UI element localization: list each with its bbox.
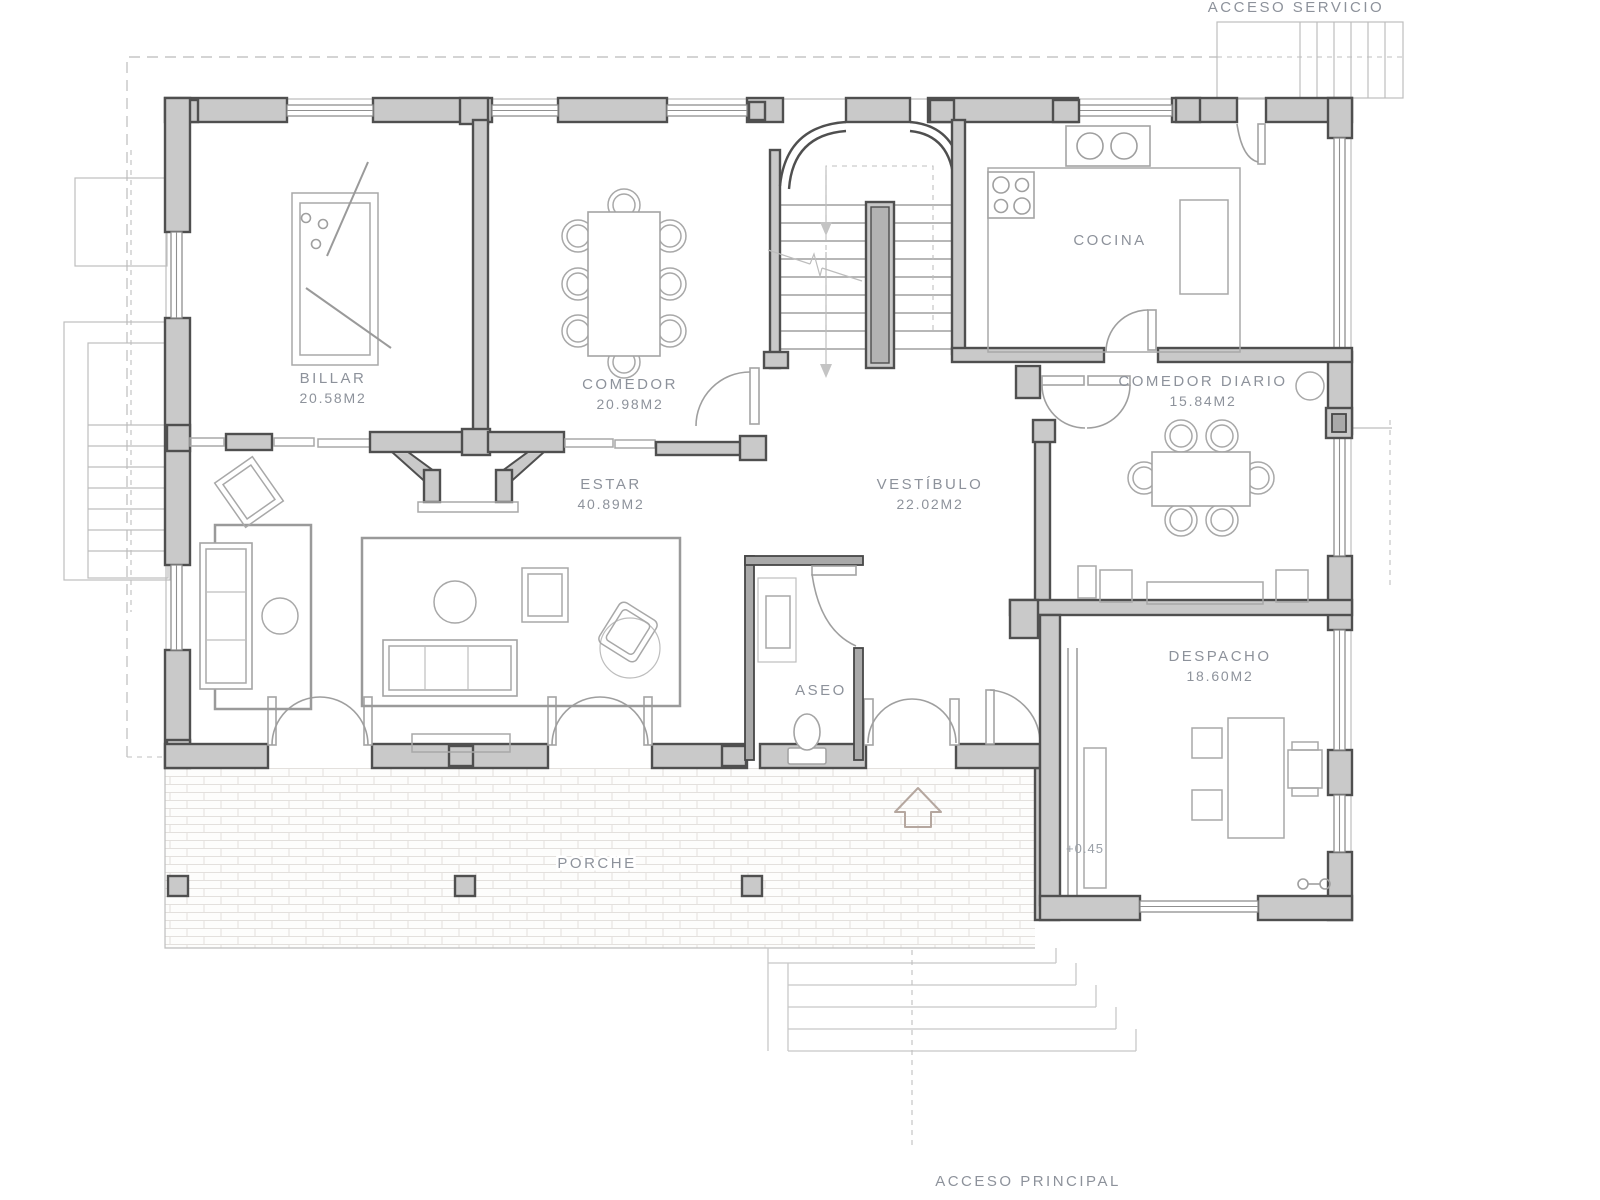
room-area-billar: 20.58M2 xyxy=(299,390,366,406)
side-chair xyxy=(1276,570,1308,602)
small-cabinet xyxy=(1078,566,1096,598)
stove-icon xyxy=(988,172,1034,218)
pillar xyxy=(1016,366,1040,398)
washbasin-icon xyxy=(758,578,796,662)
room-label-vestibulo: VESTÍBULO xyxy=(877,476,984,493)
main-access-steps xyxy=(768,948,1136,1051)
side-table xyxy=(262,598,298,634)
dining-table xyxy=(588,212,660,356)
exterior-wall-right xyxy=(1326,98,1352,920)
kitchen-door xyxy=(1106,310,1156,352)
armchair xyxy=(522,568,568,622)
room-area-estar: 40.89M2 xyxy=(577,496,644,512)
half-wall-radiator-row xyxy=(190,429,766,460)
left-exterior-stairs xyxy=(64,150,170,612)
service-access-stairs xyxy=(1217,22,1403,98)
floor-plan-drawing: ACCESO SERVICIO BILLAR 20.58M2 COMEDOR 2… xyxy=(0,0,1600,1200)
visitor-chair xyxy=(1192,728,1222,758)
porch-post xyxy=(742,876,762,896)
room-label-comedor-diario: COMEDOR DIARIO xyxy=(1118,373,1287,390)
coffee-table xyxy=(434,581,476,623)
arched-opening xyxy=(780,122,962,189)
level-mark-label: +0.45 xyxy=(1066,841,1104,856)
left-exterior-planter xyxy=(75,178,167,266)
sofa xyxy=(383,640,517,696)
sofa xyxy=(200,543,252,689)
stair-wall-foot xyxy=(764,352,788,368)
room-label-porche: PORCHE xyxy=(557,855,636,872)
kitchen-island xyxy=(1180,200,1228,294)
pillar xyxy=(930,100,954,122)
stair-wall xyxy=(770,150,780,368)
pillar xyxy=(740,436,766,460)
stair-direction-arrows xyxy=(768,170,862,378)
porch-post xyxy=(455,876,475,896)
french-door xyxy=(864,699,959,745)
room-label-billar: BILLAR xyxy=(300,370,367,387)
exterior-wall-top xyxy=(165,98,1352,164)
main-access-label: ACCESO PRINCIPAL xyxy=(935,1173,1121,1190)
corner-plant xyxy=(1296,372,1324,400)
aseo-walls xyxy=(745,556,863,764)
french-door xyxy=(268,697,372,745)
service-door xyxy=(1237,124,1265,164)
room-area-comedor: 20.98M2 xyxy=(596,396,663,412)
room-area-despacho: 18.60M2 xyxy=(1186,668,1253,684)
exterior-wall-bottom xyxy=(165,690,1040,768)
pillar-core xyxy=(1332,414,1346,432)
side-chair xyxy=(1100,570,1132,602)
wall-joint-detail xyxy=(1298,879,1330,889)
armchair xyxy=(215,457,284,528)
room-label-estar: ESTAR xyxy=(580,476,641,493)
room-labels: ACCESO SERVICIO BILLAR 20.58M2 COMEDOR 2… xyxy=(299,0,1384,1190)
room-label-cocina: COCINA xyxy=(1073,232,1146,249)
desk xyxy=(1228,718,1284,838)
exterior-wall-left xyxy=(165,98,190,768)
pillar xyxy=(1053,100,1079,122)
room-label-despacho: DESPACHO xyxy=(1168,648,1271,665)
porch-post xyxy=(168,876,188,896)
billiard-cue xyxy=(327,162,368,256)
comedor-furniture xyxy=(562,189,686,378)
pillar xyxy=(462,429,490,455)
visitor-chair xyxy=(1192,790,1222,820)
stair-spine-core xyxy=(871,207,889,363)
pillar xyxy=(722,746,746,766)
pillar xyxy=(1010,600,1038,638)
swivel-chair xyxy=(597,600,660,678)
aseo-door xyxy=(812,566,856,646)
window xyxy=(1140,901,1258,912)
pillar xyxy=(749,102,765,120)
french-door xyxy=(548,697,652,745)
fireplace-column-structure xyxy=(392,452,544,512)
central-staircase xyxy=(764,122,962,378)
pillar xyxy=(1176,98,1200,122)
service-access-label: ACCESO SERVICIO xyxy=(1208,0,1384,16)
room-area-comedor-diario: 15.84M2 xyxy=(1169,393,1236,409)
window xyxy=(1334,138,1345,852)
pillar xyxy=(1033,420,1055,442)
toilet-icon xyxy=(788,714,826,764)
pillar xyxy=(449,746,473,766)
double-sink-icon xyxy=(1066,126,1150,166)
vestibule-door xyxy=(696,368,759,426)
kitchen-walls xyxy=(952,120,1352,362)
room-label-comedor: COMEDOR xyxy=(582,376,678,393)
despacho-furniture xyxy=(1192,718,1322,838)
floor-plan-page: ACCESO SERVICIO BILLAR 20.58M2 COMEDOR 2… xyxy=(0,0,1600,1200)
porch-passage-door xyxy=(986,690,1040,744)
room-label-aseo: ASEO xyxy=(795,682,847,699)
billiard-table-icon xyxy=(292,162,391,365)
room-area-vestibulo: 22.02M2 xyxy=(896,496,963,512)
desk-chair xyxy=(1288,742,1322,796)
interior-wall-billar-comedor xyxy=(473,120,488,432)
pillar xyxy=(167,425,190,451)
dining-table xyxy=(1152,452,1250,506)
